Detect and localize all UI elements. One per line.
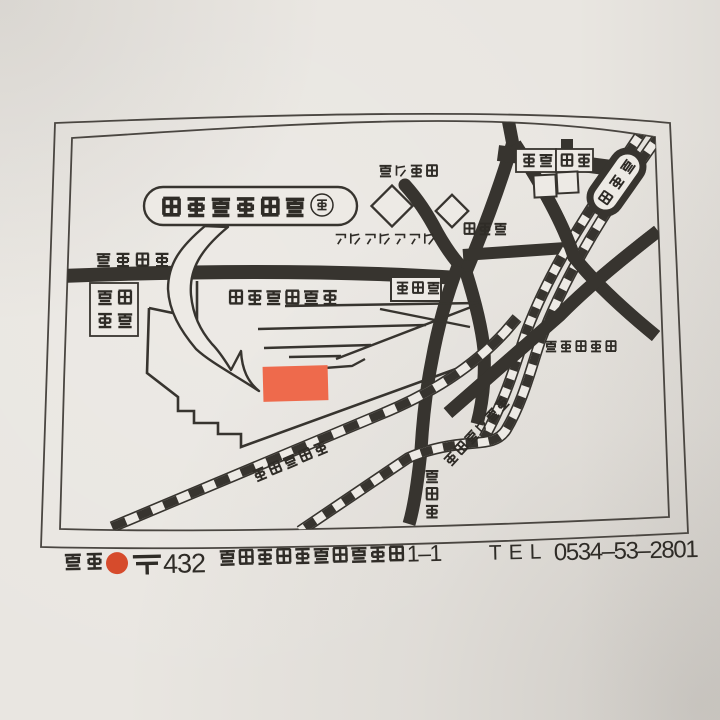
- svg-text:TEL: TEL: [489, 540, 549, 564]
- svg-text:0534–53–2801: 0534–53–2801: [554, 536, 699, 566]
- svg-text:1–1: 1–1: [407, 540, 442, 567]
- svg-text:432: 432: [163, 548, 206, 579]
